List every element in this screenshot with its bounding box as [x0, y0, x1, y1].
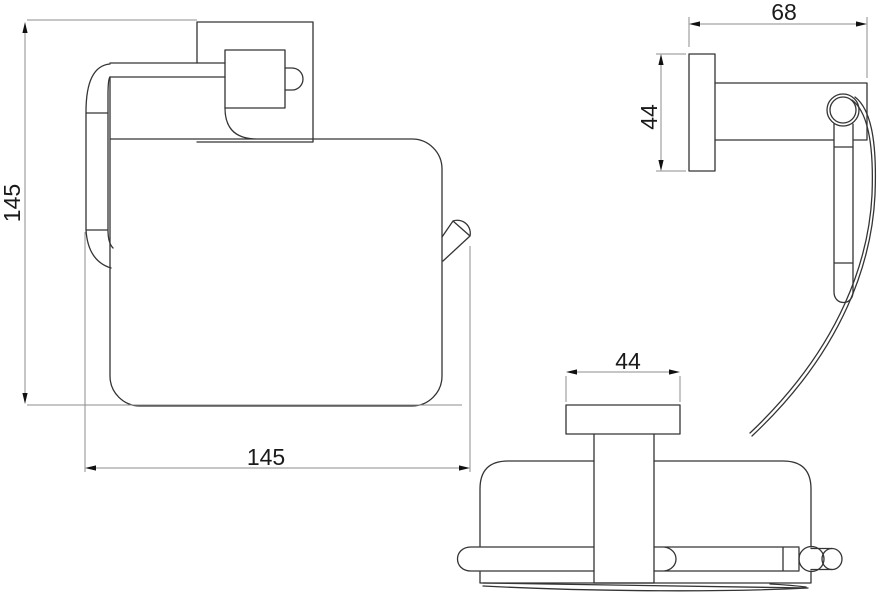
dimension-labels: 145 145 68 44 44 [0, 0, 797, 470]
cover-top-outline [480, 461, 811, 583]
pivot-ring-inner [830, 97, 856, 123]
side-plate-height-label: 44 [636, 104, 662, 130]
axle-left-segment [458, 547, 595, 571]
dimension-lines [689, 17, 867, 78]
dimensions [22, 17, 867, 472]
wall-plate-front [197, 22, 313, 142]
axle-end-cap [822, 549, 842, 570]
roller-block [225, 50, 285, 108]
side-depth-dimension [689, 17, 867, 78]
arrow-right-icon [459, 465, 470, 470]
arrow-left-icon [566, 369, 577, 374]
arrow-right-icon [856, 21, 867, 26]
side-depth-label: 68 [771, 0, 797, 25]
axle-end-circle [799, 547, 824, 572]
roller-stub [285, 68, 303, 90]
left-rolled-edge [86, 64, 113, 268]
top-bar [110, 63, 225, 77]
technical-drawing-canvas: 145 145 68 44 44 [0, 0, 878, 592]
axle-right-segment [654, 547, 832, 571]
front-width-label: 145 [247, 444, 285, 470]
front-view [86, 22, 470, 406]
arrow-right-icon [669, 369, 680, 374]
pivot-ring-outer [827, 94, 859, 126]
mount-arm [715, 83, 867, 140]
front-height-label: 145 [0, 184, 25, 222]
dimension-lines [25, 20, 462, 405]
wall-plate-side [689, 54, 715, 171]
mount-stem [594, 434, 654, 583]
object-lines [86, 22, 875, 591]
side-view [689, 54, 875, 436]
spindle-tip [442, 220, 470, 261]
arrow-left-icon [85, 465, 96, 470]
arrow-down-icon [658, 160, 663, 171]
cover-bottom-lip [483, 583, 808, 591]
arrow-up-icon [658, 54, 663, 65]
arrow-up-icon [22, 22, 27, 33]
top-plate-width-label: 44 [615, 348, 641, 374]
dimension-lines [85, 232, 470, 472]
wall-plate-top [566, 405, 680, 434]
front-height-dimension [22, 20, 462, 405]
top-plate-width-dimension [566, 369, 680, 402]
toilet-paper-holder-drawing: 145 145 68 44 44 [0, 0, 878, 592]
front-width-dimension [85, 232, 470, 472]
dimension-lines [566, 372, 680, 402]
roll-holder-wire [750, 97, 875, 436]
hanging-bar [834, 124, 853, 303]
arrow-down-icon [22, 393, 27, 404]
top-view [458, 405, 843, 591]
arrow-left-icon [689, 21, 700, 26]
cover-outline [110, 77, 442, 406]
